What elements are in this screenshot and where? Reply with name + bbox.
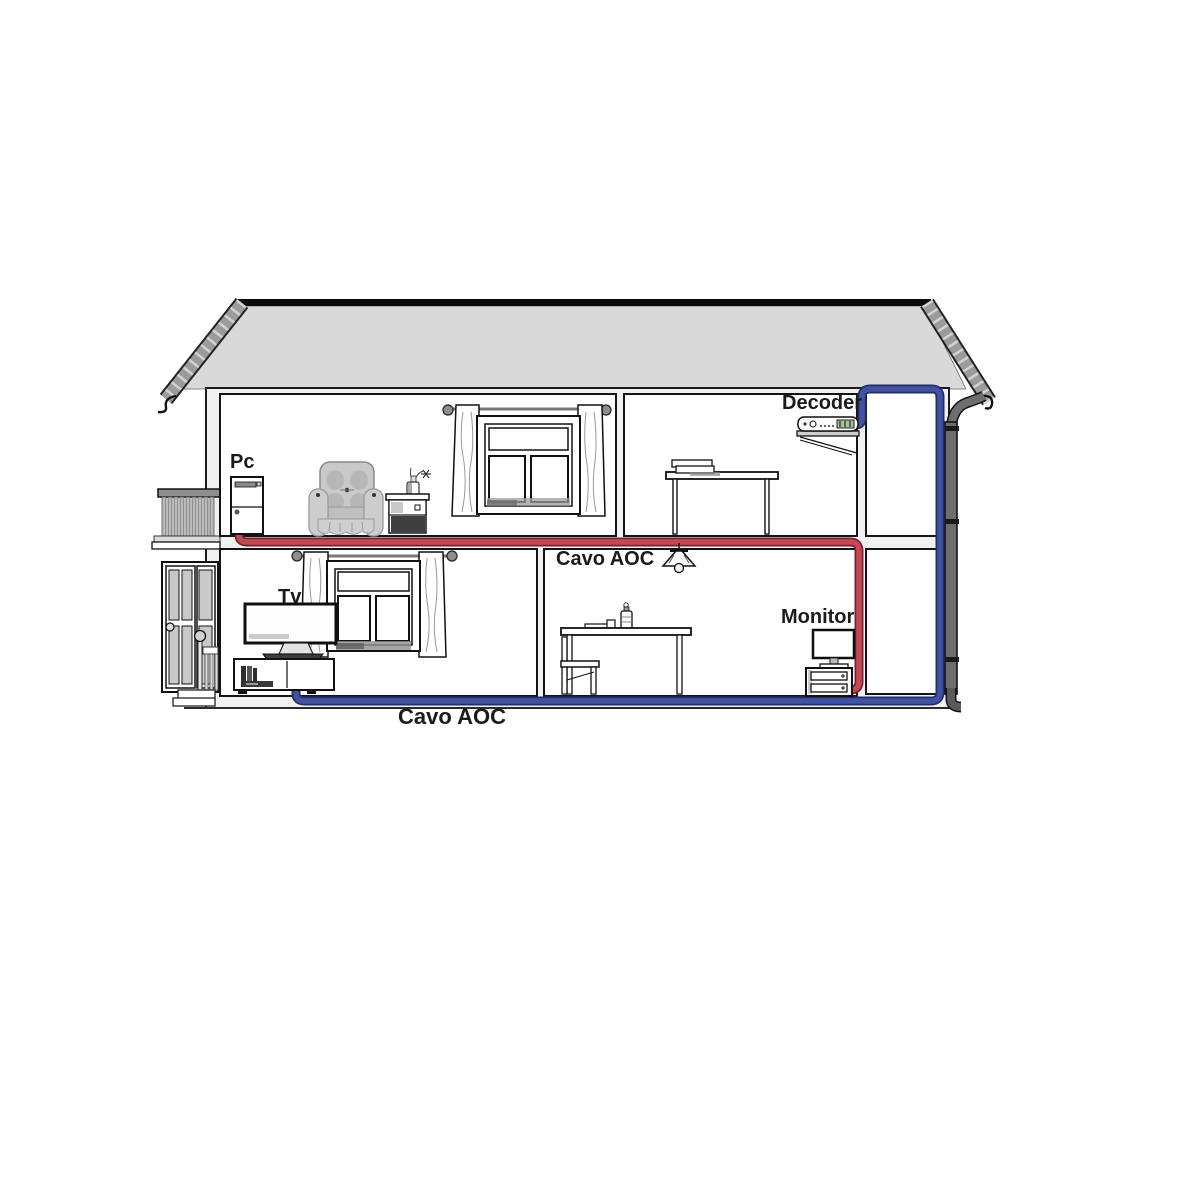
door-stoop-lower [173,698,215,706]
wall-chase-upper [866,391,937,536]
table-top [561,628,691,635]
downspout-bracket [942,519,959,524]
roof-ridge [236,299,931,306]
downspout-bracket [942,657,959,662]
tv-stand-neck [279,643,313,654]
armchair [309,462,383,536]
downspout-bracket [942,426,959,431]
lamp-bulb [675,564,684,573]
balcony [152,489,220,549]
window-pane [376,596,409,641]
downspout-pipe [945,422,957,694]
chair-leg [591,667,596,694]
cavo-aoc-bottom-label: Cavo AOC [398,706,506,728]
chair-seat [561,661,599,667]
window-pane [489,456,525,502]
rod-finial [443,405,453,415]
roof-slab [180,306,966,389]
downspout [942,396,984,707]
upper-window [443,405,611,516]
monitor-cabinet [806,668,852,696]
wall-chase-lower [866,549,937,694]
decoder-label: Decoder [782,393,862,413]
monitor-screen [813,630,854,658]
pc-tower [231,477,263,534]
cabinet-foot [238,690,247,694]
tv-label: Tv [278,587,301,607]
curtain-left [452,405,479,516]
tv-cabinet [234,659,334,694]
curtain-right [578,405,605,516]
house-cross-section-diagram: Pc Decoder Tv Cavo AOC Monitor Cavo AOC [0,0,1200,1200]
monitor-neck [830,658,838,664]
pc-drive-slot [235,482,256,487]
balcony-ledge [154,536,220,542]
cavo-aoc-room-label: Cavo AOC [556,549,654,569]
railing-newel-ball [195,631,206,642]
rod-finial [292,551,302,561]
balcony-slab [152,542,220,549]
side-table-top [386,494,429,500]
window-pane [531,456,568,502]
door-knob [166,623,174,631]
balcony-rail [158,489,220,497]
curtain-right [419,552,446,657]
room-upper-right [624,394,857,536]
window-pane [338,596,370,641]
rod-finial [447,551,457,561]
pc-power-button [235,510,240,515]
monitor-label: Monitor [781,607,854,627]
diagram-canvas [0,0,1200,1200]
entry-door [162,562,218,706]
cabinet-foot [307,690,316,694]
balcony-balusters [162,497,214,536]
pc-label: Pc [230,452,254,472]
window-transom [489,428,568,450]
armchair-skirt [318,519,374,535]
window-transom [338,572,409,591]
